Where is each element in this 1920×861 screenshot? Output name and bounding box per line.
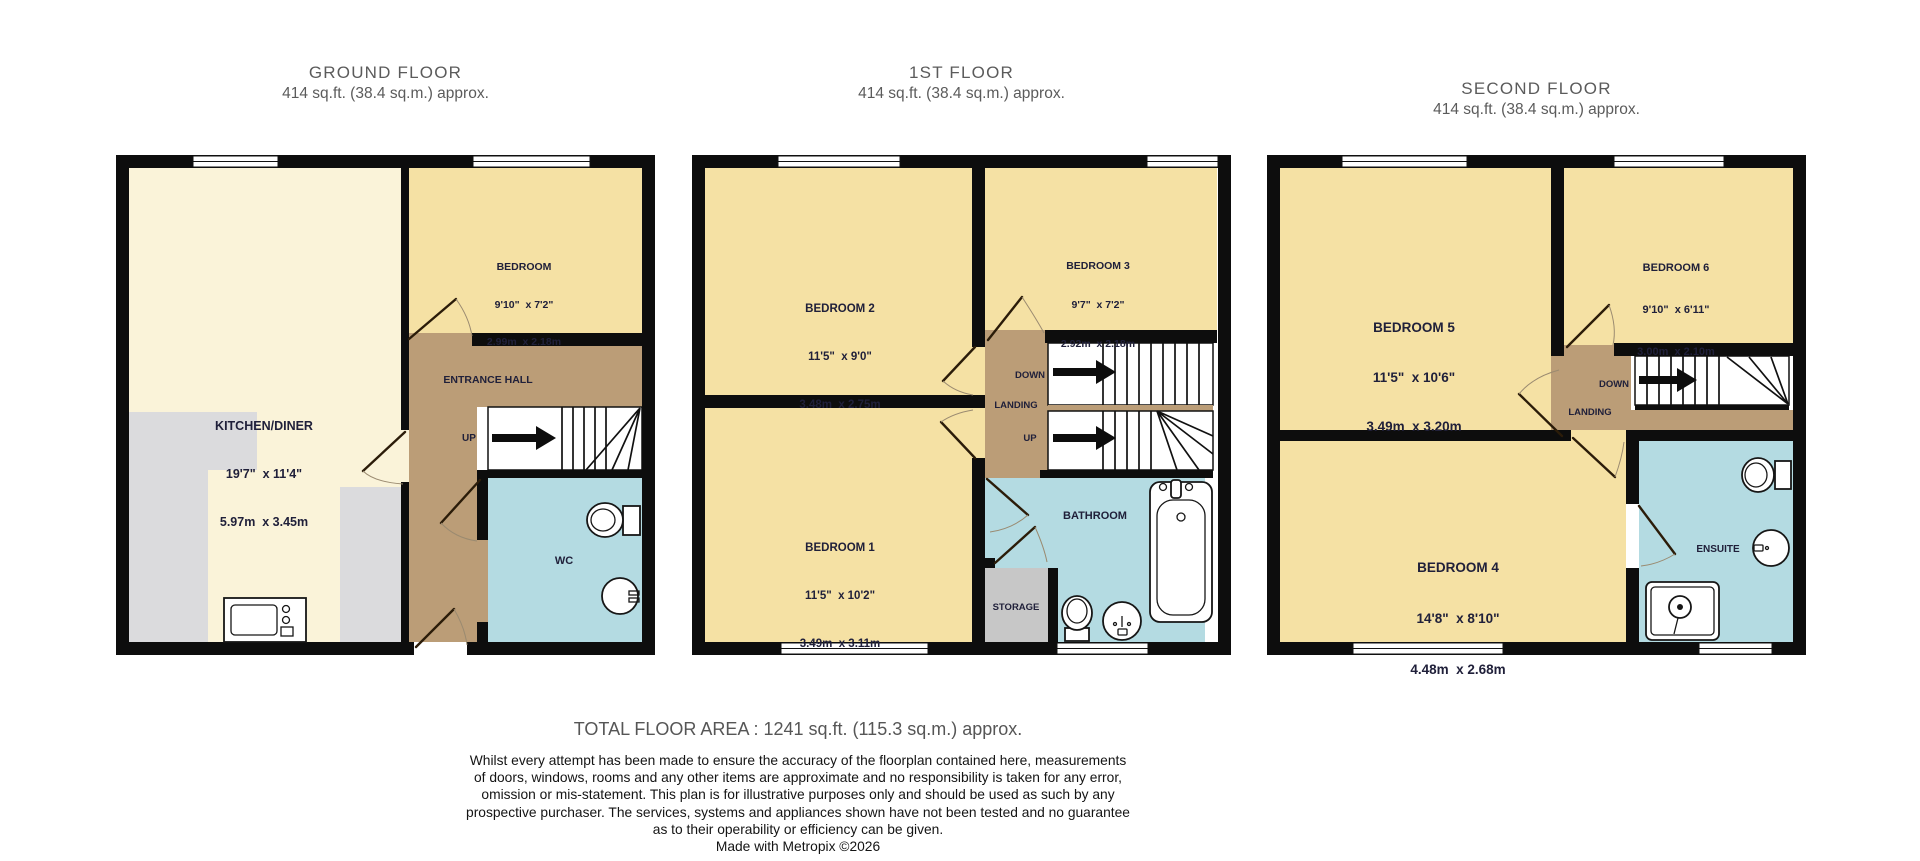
ff-down-label: DOWN [1015, 370, 1045, 381]
basin-icon [1103, 602, 1141, 640]
room-name: BEDROOM 1 [800, 540, 881, 556]
second-floor-area: 414 sq.ft. (38.4 sq.m.) approx. [1267, 101, 1806, 119]
room-name: BEDROOM 2 [799, 301, 880, 317]
first-floor-header: 1ST FLOOR 414 sq.ft. (38.4 sq.m.) approx… [692, 63, 1231, 103]
metropix-credit: Made with Metropix ©2026 [308, 838, 1288, 855]
total-floor-area: TOTAL FLOOR AREA : 1241 sq.ft. (115.3 sq… [574, 719, 1023, 740]
bedroom3-label: BEDROOM 3 9'7" x 7'2" 2.92m x 2.18m [1061, 234, 1135, 364]
room-size-imperial: 11'5" x 10'6" [1366, 370, 1461, 387]
ground-floor-header: GROUND FLOOR 414 sq.ft. (38.4 sq.m.) app… [116, 63, 655, 103]
ground-floor-title: GROUND FLOOR [116, 63, 655, 83]
room-size-imperial: 9'7" x 7'2" [1061, 299, 1135, 312]
toilet-icon [1062, 596, 1092, 641]
entrance-hall-room [477, 540, 488, 622]
bathroom-label: BATHROOM [1063, 510, 1127, 522]
disclaimer-line: Whilst every attempt has been made to en… [308, 752, 1288, 769]
stair-divider [1048, 405, 1213, 411]
first-floor-title: 1ST FLOOR [692, 63, 1231, 83]
basin-icon [602, 578, 639, 614]
shower-icon [1646, 582, 1719, 640]
room-size-metric: 3.49m x 3.11m [800, 636, 881, 652]
disclaimer: Whilst every attempt has been made to en… [308, 752, 1288, 855]
room-size-metric: 3.00m x 2.10m [1637, 345, 1715, 359]
bedroom4-label: BEDROOM 4 14'8" x 8'10" 4.48m x 2.68m [1410, 525, 1505, 695]
gf-up-label: UP [462, 433, 476, 444]
ff-up-label: UP [1023, 433, 1036, 444]
room-name: BEDROOM 6 [1637, 261, 1715, 275]
sf-landing-label: LANDING [1568, 407, 1611, 418]
front-door-opening [414, 642, 467, 655]
first-floor-area: 414 sq.ft. (38.4 sq.m.) approx. [692, 85, 1231, 103]
room-name: BEDROOM [487, 261, 561, 274]
room-name: BEDROOM 4 [1410, 559, 1505, 576]
gf-staircase-up [488, 407, 642, 470]
room-name: BEDROOM 3 [1061, 260, 1135, 273]
room-name: KITCHEN/DINER [215, 418, 313, 434]
room-name: BEDROOM 5 [1366, 320, 1461, 337]
second-floor-title: SECOND FLOOR [1267, 79, 1806, 99]
room-size-imperial: 19'7" x 11'4" [215, 466, 313, 482]
room-size-metric: 3.49m x 3.20m [1366, 419, 1461, 436]
gf-bedroom-label: BEDROOM 9'10" x 7'2" 2.99m x 2.18m [487, 236, 561, 361]
basin-icon [1753, 530, 1789, 566]
ground-floor-area: 414 sq.ft. (38.4 sq.m.) approx. [116, 85, 655, 103]
toilet-icon [1742, 458, 1791, 492]
ground-floor-plan [116, 155, 655, 655]
disclaimer-line: omission or mis-statement. This plan is … [308, 786, 1288, 803]
bedroom2-label: BEDROOM 2 11'5" x 9'0" 3.48m x 2.75m [799, 269, 880, 429]
kitchen-diner-label: KITCHEN/DINER 19'7" x 11'4" 5.97m x 3.45… [215, 386, 313, 546]
floorplan-page: { "floors": [ { "title": "GROUND FLOOR",… [0, 0, 1920, 861]
second-floor-header: SECOND FLOOR 414 sq.ft. (38.4 sq.m.) app… [1267, 79, 1806, 119]
ff-staircase-up [1048, 411, 1213, 470]
ensuite-label: ENSUITE [1696, 544, 1739, 555]
kitchen-counter [340, 487, 401, 642]
disclaimer-line: as to their operability or efficiency ca… [308, 821, 1288, 838]
room-size-metric: 5.97m x 3.45m [215, 514, 313, 530]
room-size-imperial: 11'5" x 9'0" [799, 349, 880, 365]
ff-landing-label: LANDING [994, 400, 1037, 411]
room-size-imperial: 11'5" x 10'2" [800, 588, 881, 604]
room-size-imperial: 9'10" x 7'2" [487, 299, 561, 312]
sf-landing-room [1631, 410, 1793, 430]
sf-down-label: DOWN [1599, 379, 1629, 390]
second-floor-plan [1267, 155, 1806, 655]
entrance-hall-label: ENTRANCE HALL [443, 374, 532, 386]
bedroom1-label: BEDROOM 1 11'5" x 10'2" 3.49m x 3.11m [800, 508, 881, 668]
room-size-imperial: 9'10" x 6'11" [1637, 303, 1715, 317]
disclaimer-line: of doors, windows, rooms and any other i… [308, 769, 1288, 786]
kitchen-sink-icon [224, 598, 306, 642]
bathtub-icon [1150, 480, 1212, 622]
disclaimer-line: prospective purchaser. The services, sys… [308, 804, 1288, 821]
bedroom5-label: BEDROOM 5 11'5" x 10'6" 3.49m x 3.20m [1366, 287, 1461, 452]
bedroom6-label: BEDROOM 6 9'10" x 6'11" 3.00m x 2.10m [1637, 233, 1715, 373]
room-size-metric: 2.99m x 2.18m [487, 336, 561, 349]
storage-label: STORAGE [993, 602, 1040, 613]
first-floor-plan [692, 155, 1231, 655]
toilet-icon [587, 503, 640, 537]
room-size-metric: 3.48m x 2.75m [799, 397, 880, 413]
room-size-metric: 4.48m x 2.68m [1410, 661, 1505, 678]
room-size-imperial: 14'8" x 8'10" [1410, 610, 1505, 627]
wc-label: WC [555, 555, 573, 567]
kitchen-counter [129, 470, 208, 642]
room-size-metric: 2.92m x 2.18m [1061, 338, 1135, 351]
